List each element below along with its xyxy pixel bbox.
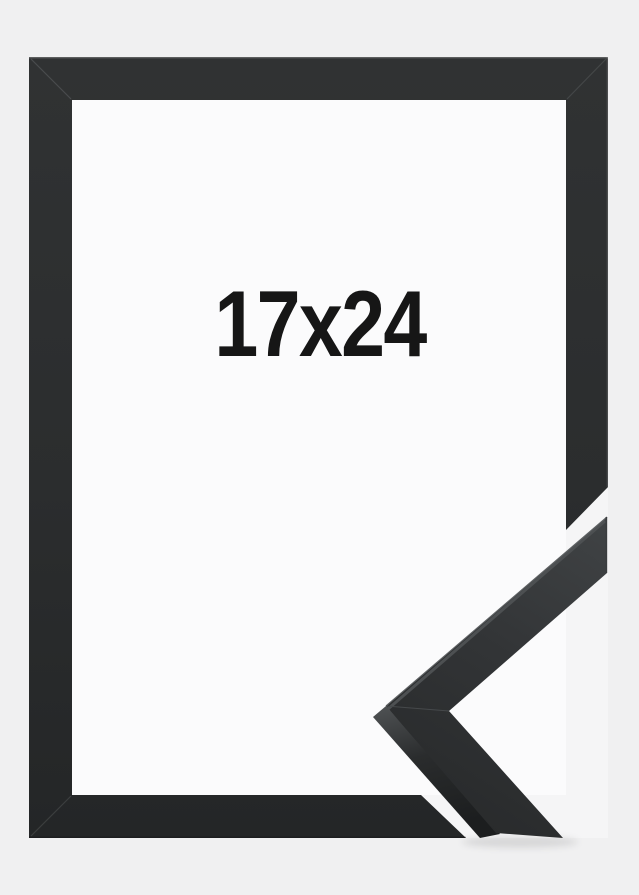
frame-opening: [72, 100, 566, 795]
frame-size-label: 17x24: [214, 272, 427, 377]
product-photo: 17x24: [0, 0, 639, 895]
frame-product-image: 17x24: [0, 0, 639, 895]
